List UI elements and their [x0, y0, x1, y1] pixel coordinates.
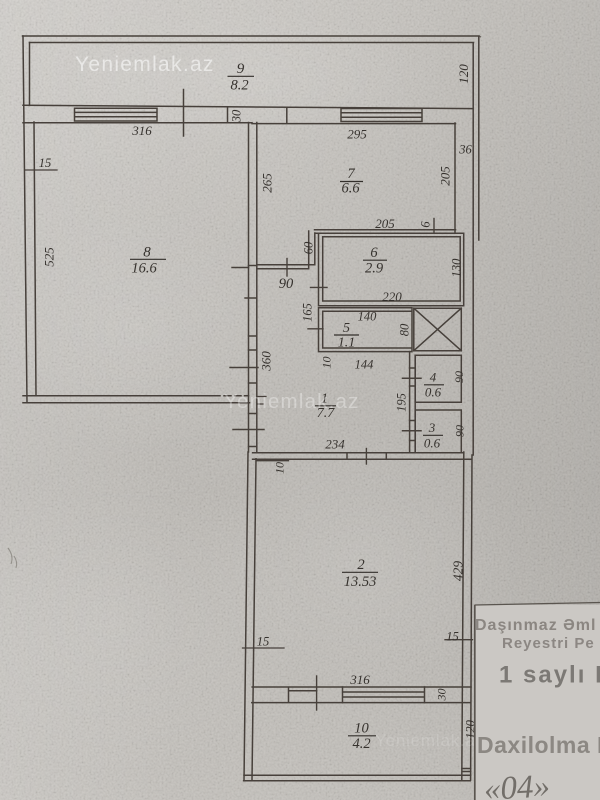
svg-text:13.53: 13.53 [344, 574, 377, 590]
svg-text:1.1: 1.1 [338, 336, 356, 351]
svg-text:1 saylı B: 1 saylı B [499, 662, 600, 689]
svg-text:10: 10 [354, 721, 369, 737]
svg-text:205: 205 [438, 166, 453, 186]
svg-text:Yeniemlak.az: Yeniemlak.az [224, 390, 360, 413]
svg-text:130: 130 [450, 258, 464, 278]
svg-text:4.2: 4.2 [352, 736, 370, 752]
svg-text:360: 360 [259, 351, 274, 372]
svg-text:0.6: 0.6 [425, 385, 442, 400]
svg-text:525: 525 [42, 247, 57, 267]
svg-text:15: 15 [257, 635, 270, 649]
svg-text:8.2: 8.2 [230, 78, 248, 94]
svg-text:Daxilolma N: Daxilolma N [477, 732, 600, 758]
svg-text:0.6: 0.6 [424, 436, 441, 451]
svg-text:3: 3 [428, 420, 436, 435]
svg-text:2.9: 2.9 [365, 261, 384, 277]
svg-text:6: 6 [419, 221, 433, 228]
svg-text:90: 90 [279, 276, 294, 292]
svg-text:6: 6 [370, 245, 378, 261]
svg-text:30: 30 [435, 689, 449, 702]
svg-text:234: 234 [325, 437, 345, 452]
svg-text:5: 5 [343, 321, 350, 336]
svg-text:30: 30 [230, 109, 244, 123]
svg-text:10: 10 [273, 462, 287, 474]
svg-text:15: 15 [39, 156, 52, 170]
svg-text:316: 316 [349, 672, 370, 687]
svg-text:9: 9 [237, 61, 245, 77]
svg-text:6.6: 6.6 [341, 181, 360, 197]
svg-text:295: 295 [347, 127, 367, 142]
svg-text:Yeniemlak.az: Yeniemlak.az [75, 53, 215, 76]
svg-text:Reyestri Pe: Reyestri Pe [502, 635, 595, 652]
svg-text:Daşınmaz Əml: Daşınmaz Əml [475, 617, 596, 634]
svg-text:429: 429 [451, 561, 466, 582]
svg-text:265: 265 [260, 173, 275, 193]
svg-text:80: 80 [398, 323, 412, 336]
svg-text:«04»: «04» [483, 768, 551, 800]
svg-text:316: 316 [131, 123, 152, 138]
svg-text:2: 2 [357, 557, 364, 573]
svg-text:16.6: 16.6 [131, 261, 157, 277]
svg-text:4: 4 [430, 370, 437, 385]
svg-text:60: 60 [302, 241, 316, 254]
svg-text:36: 36 [458, 143, 472, 157]
svg-text:8: 8 [143, 245, 151, 261]
svg-text:140: 140 [358, 310, 378, 324]
svg-text:144: 144 [355, 358, 374, 372]
svg-text:90: 90 [452, 371, 466, 383]
svg-text:165: 165 [301, 303, 315, 322]
svg-text:120: 120 [456, 64, 471, 84]
svg-text:195: 195 [395, 393, 409, 412]
svg-text:Yeniemlak.az: Yeniemlak.az [375, 731, 485, 750]
svg-text:205: 205 [375, 216, 395, 231]
svg-text:90: 90 [453, 425, 467, 437]
svg-text:10: 10 [320, 357, 334, 369]
svg-text:15: 15 [446, 630, 459, 644]
svg-text:220: 220 [382, 289, 402, 304]
